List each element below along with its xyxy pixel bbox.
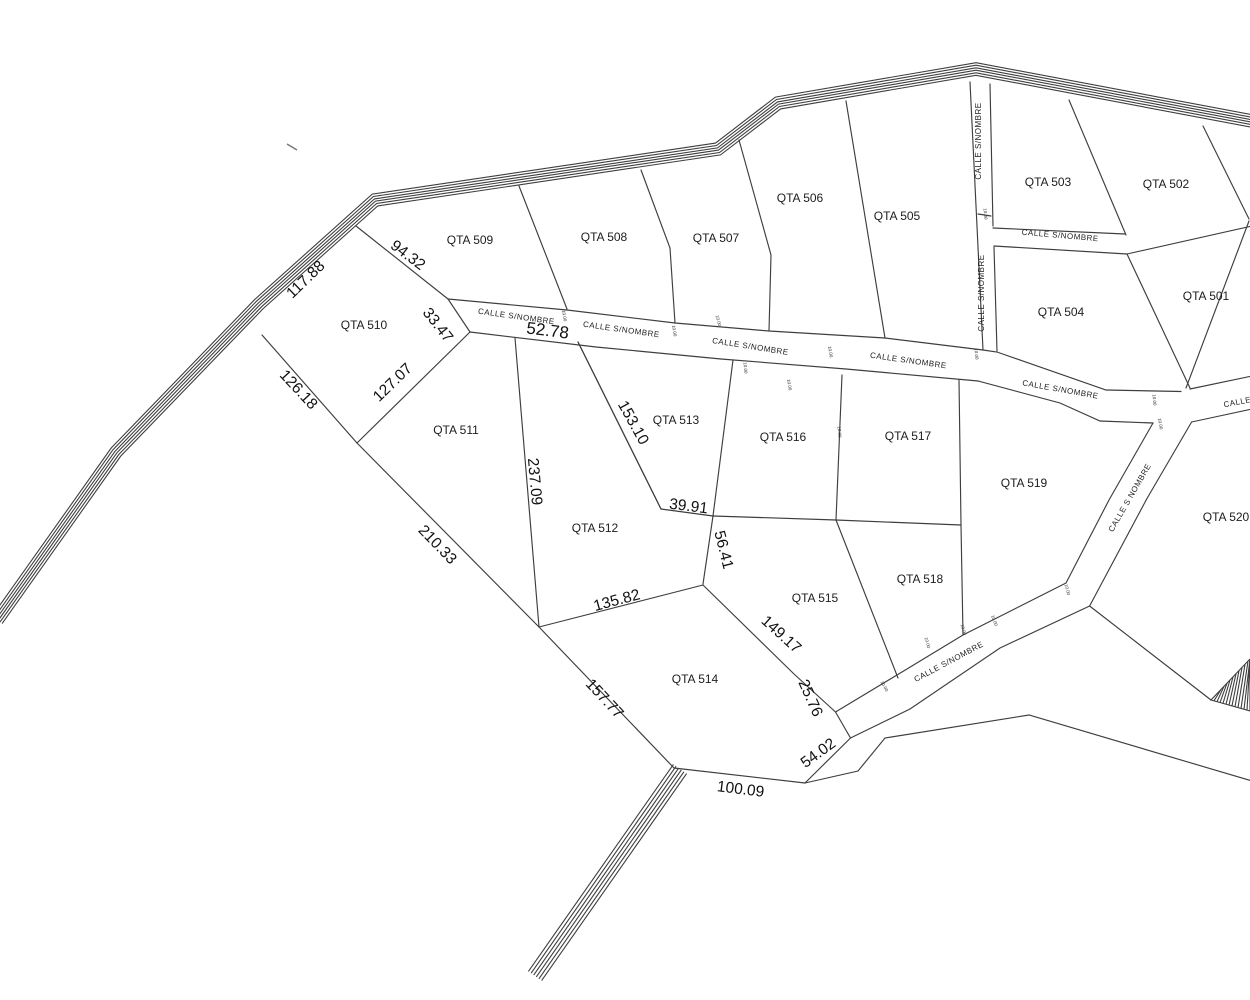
svg-text:10.00: 10.00 (743, 362, 749, 374)
svg-text:QTA 519: QTA 519 (1001, 476, 1048, 490)
svg-text:10.00: 10.00 (837, 426, 843, 438)
svg-text:QTA 516: QTA 516 (760, 430, 807, 444)
svg-text:QTA 512: QTA 512 (572, 521, 619, 535)
svg-text:QTA 501: QTA 501 (1183, 289, 1230, 303)
svg-text:CALLE S/NOMBRE: CALLE S/NOMBRE (977, 254, 986, 331)
svg-text:QTA 509: QTA 509 (447, 233, 494, 247)
svg-text:QTA 517: QTA 517 (885, 429, 932, 443)
svg-text:10.00: 10.00 (1152, 394, 1158, 406)
svg-text:10.00: 10.00 (974, 348, 980, 360)
svg-text:QTA 503: QTA 503 (1025, 175, 1072, 189)
svg-text:QTA 508: QTA 508 (581, 230, 628, 244)
svg-text:QTA 518: QTA 518 (897, 572, 944, 586)
svg-text:10.00: 10.00 (983, 208, 989, 220)
svg-text:QTA 505: QTA 505 (874, 209, 921, 223)
svg-text:QTA 502: QTA 502 (1143, 177, 1190, 191)
svg-text:QTA 511: QTA 511 (433, 423, 479, 437)
svg-text:QTA 513: QTA 513 (653, 413, 700, 427)
svg-text:QTA 506: QTA 506 (777, 191, 824, 205)
svg-text:QTA 507: QTA 507 (693, 231, 740, 245)
svg-text:QTA 504: QTA 504 (1038, 305, 1085, 319)
svg-text:QTA 514: QTA 514 (672, 672, 719, 686)
svg-text:QTA 520: QTA 520 (1203, 510, 1250, 524)
svg-text:CALLE S/NOMBRE: CALLE S/NOMBRE (974, 102, 983, 179)
svg-text:QTA 515: QTA 515 (792, 591, 839, 605)
svg-text:QTA 510: QTA 510 (341, 318, 388, 332)
